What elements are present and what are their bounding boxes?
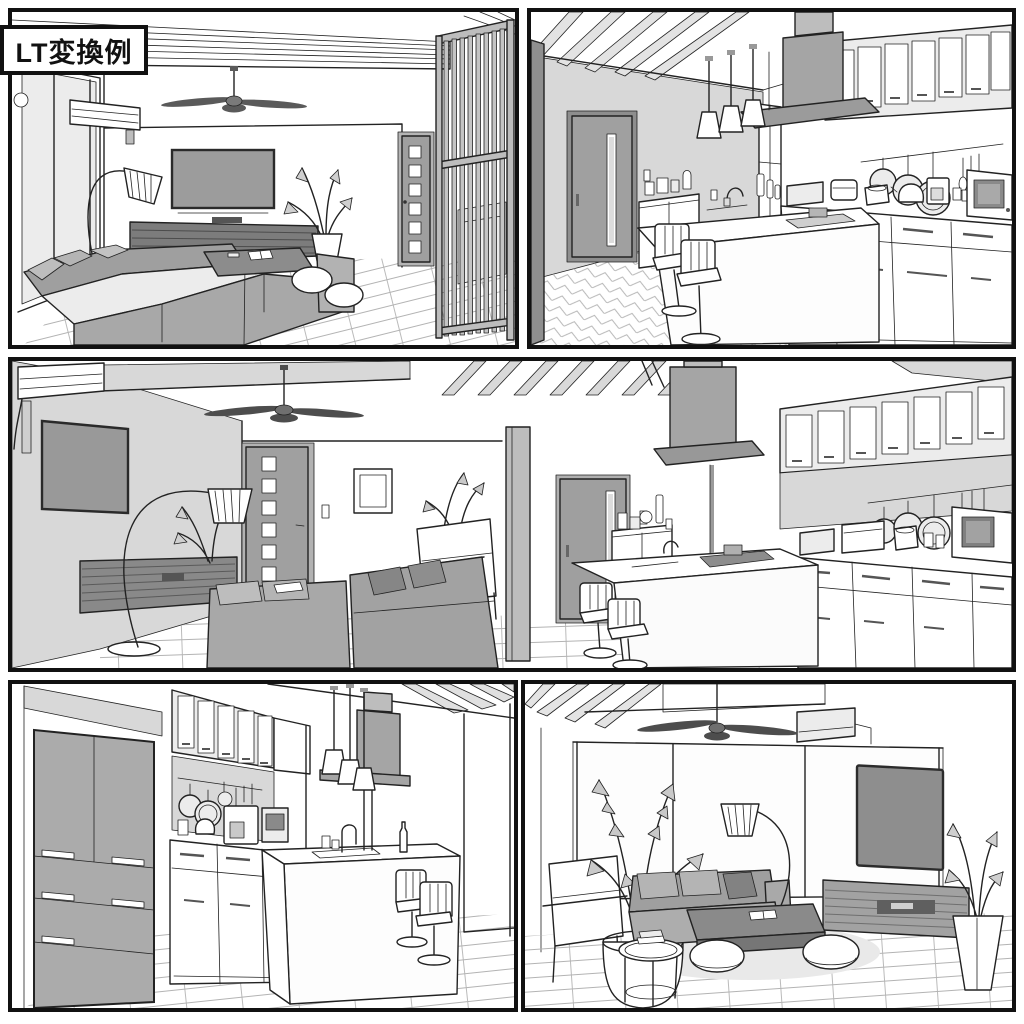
panel-living-room-2 (521, 680, 1016, 1012)
tv (42, 421, 128, 513)
panel-kitchen-2 (8, 680, 518, 1012)
pouf (292, 267, 332, 293)
manga-page: LT変換例 (0, 0, 1024, 1024)
range-hood (642, 361, 764, 553)
air-conditioner (797, 708, 871, 744)
pouf (325, 283, 363, 307)
page-label-text: LT変換例 (16, 31, 133, 70)
sliding-door (567, 111, 637, 262)
pouf (690, 940, 744, 972)
tv (172, 150, 274, 208)
tv-lowboard (823, 880, 969, 938)
window-wall (464, 704, 514, 936)
ceiling-fan (161, 66, 307, 113)
wine-bottle (400, 822, 407, 852)
soffit (100, 361, 410, 391)
outlet (644, 170, 650, 181)
pillar (506, 427, 530, 661)
light-switch (322, 505, 329, 518)
refrigerator (34, 730, 154, 1008)
tv (857, 765, 943, 870)
open-door-leaf (531, 40, 544, 345)
door-living (242, 443, 314, 595)
pouf (803, 935, 859, 969)
wall-clock (14, 93, 28, 107)
picture-frame (354, 469, 392, 513)
door (398, 132, 434, 266)
page-label: LT変換例 (0, 25, 148, 75)
lower-cabinets (792, 557, 1012, 668)
soffit (24, 686, 162, 736)
panel-ldk-wide (8, 357, 1016, 672)
ceiling-beams (525, 684, 661, 728)
panel-kitchen-1 (527, 8, 1016, 349)
